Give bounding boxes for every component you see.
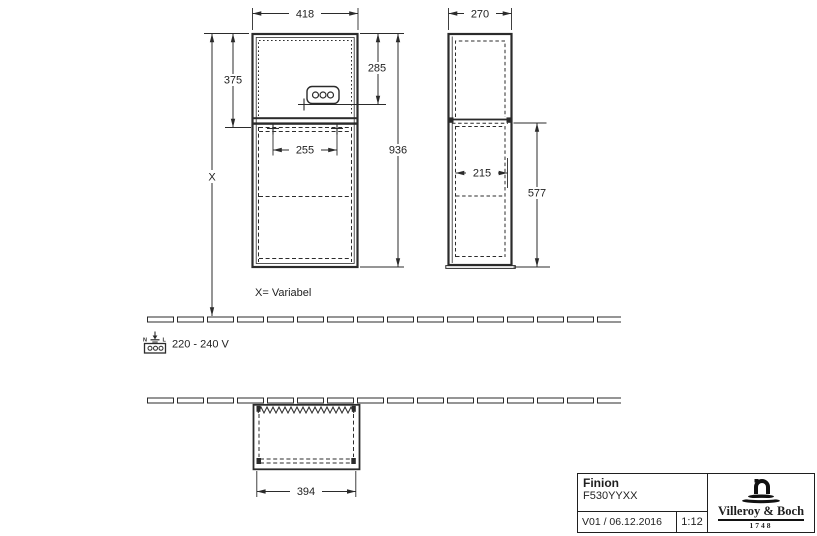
mounting-rail-zigzag — [258, 407, 354, 413]
dim-inner-depth: 215 — [473, 168, 491, 180]
wall-hatch-band — [147, 397, 621, 404]
dim-socket-from-top: 285 — [368, 63, 386, 75]
dim-upper-height: 375 — [224, 75, 242, 87]
brand-logo: Villeroy & Boch 1748 — [707, 474, 814, 532]
floor-hatch-band — [147, 316, 621, 323]
article-number: F530YYXX — [583, 490, 707, 503]
dim-plan-inner-width: 394 — [297, 486, 315, 498]
terminal-n-label: N — [143, 338, 147, 344]
version-date: V01 / 06.12.2016 — [578, 512, 677, 532]
dim-total-height: 936 — [389, 145, 407, 157]
brand-name: Villeroy & Boch — [718, 505, 804, 521]
technical-drawing: 418 270 375 285 936 X 255 215 577 394 X=… — [0, 0, 817, 536]
dim-front-width: 418 — [296, 9, 314, 21]
voltage-label: 220 - 240 V — [172, 339, 230, 351]
side-view — [446, 34, 516, 268]
terminal-l-label: L — [163, 338, 167, 344]
vb-fountain-logo-icon — [737, 478, 785, 505]
title-block: Finion F530YYXX V01 / 06.12.2016 1:12 Vi… — [577, 473, 815, 533]
product-name: Finion — [583, 477, 707, 490]
dim-lower-height: 577 — [528, 188, 546, 200]
dim-variable-x: X — [208, 172, 216, 184]
drawing-scale: 1:12 — [677, 512, 707, 532]
dim-side-depth: 270 — [471, 9, 489, 21]
dim-hole-spacing: 255 — [296, 145, 314, 157]
plan-view — [254, 405, 360, 470]
socket-3pin-icon — [298, 87, 339, 111]
title-block-name-cell: Finion F530YYXX — [578, 474, 707, 512]
power-connection: N L 220 - 240 V — [143, 332, 230, 354]
spec-sheet-page: 418 270 375 285 936 X 255 215 577 394 X=… — [0, 0, 817, 536]
brand-year: 1748 — [750, 521, 773, 530]
variable-note: X= Variabel — [255, 287, 311, 299]
